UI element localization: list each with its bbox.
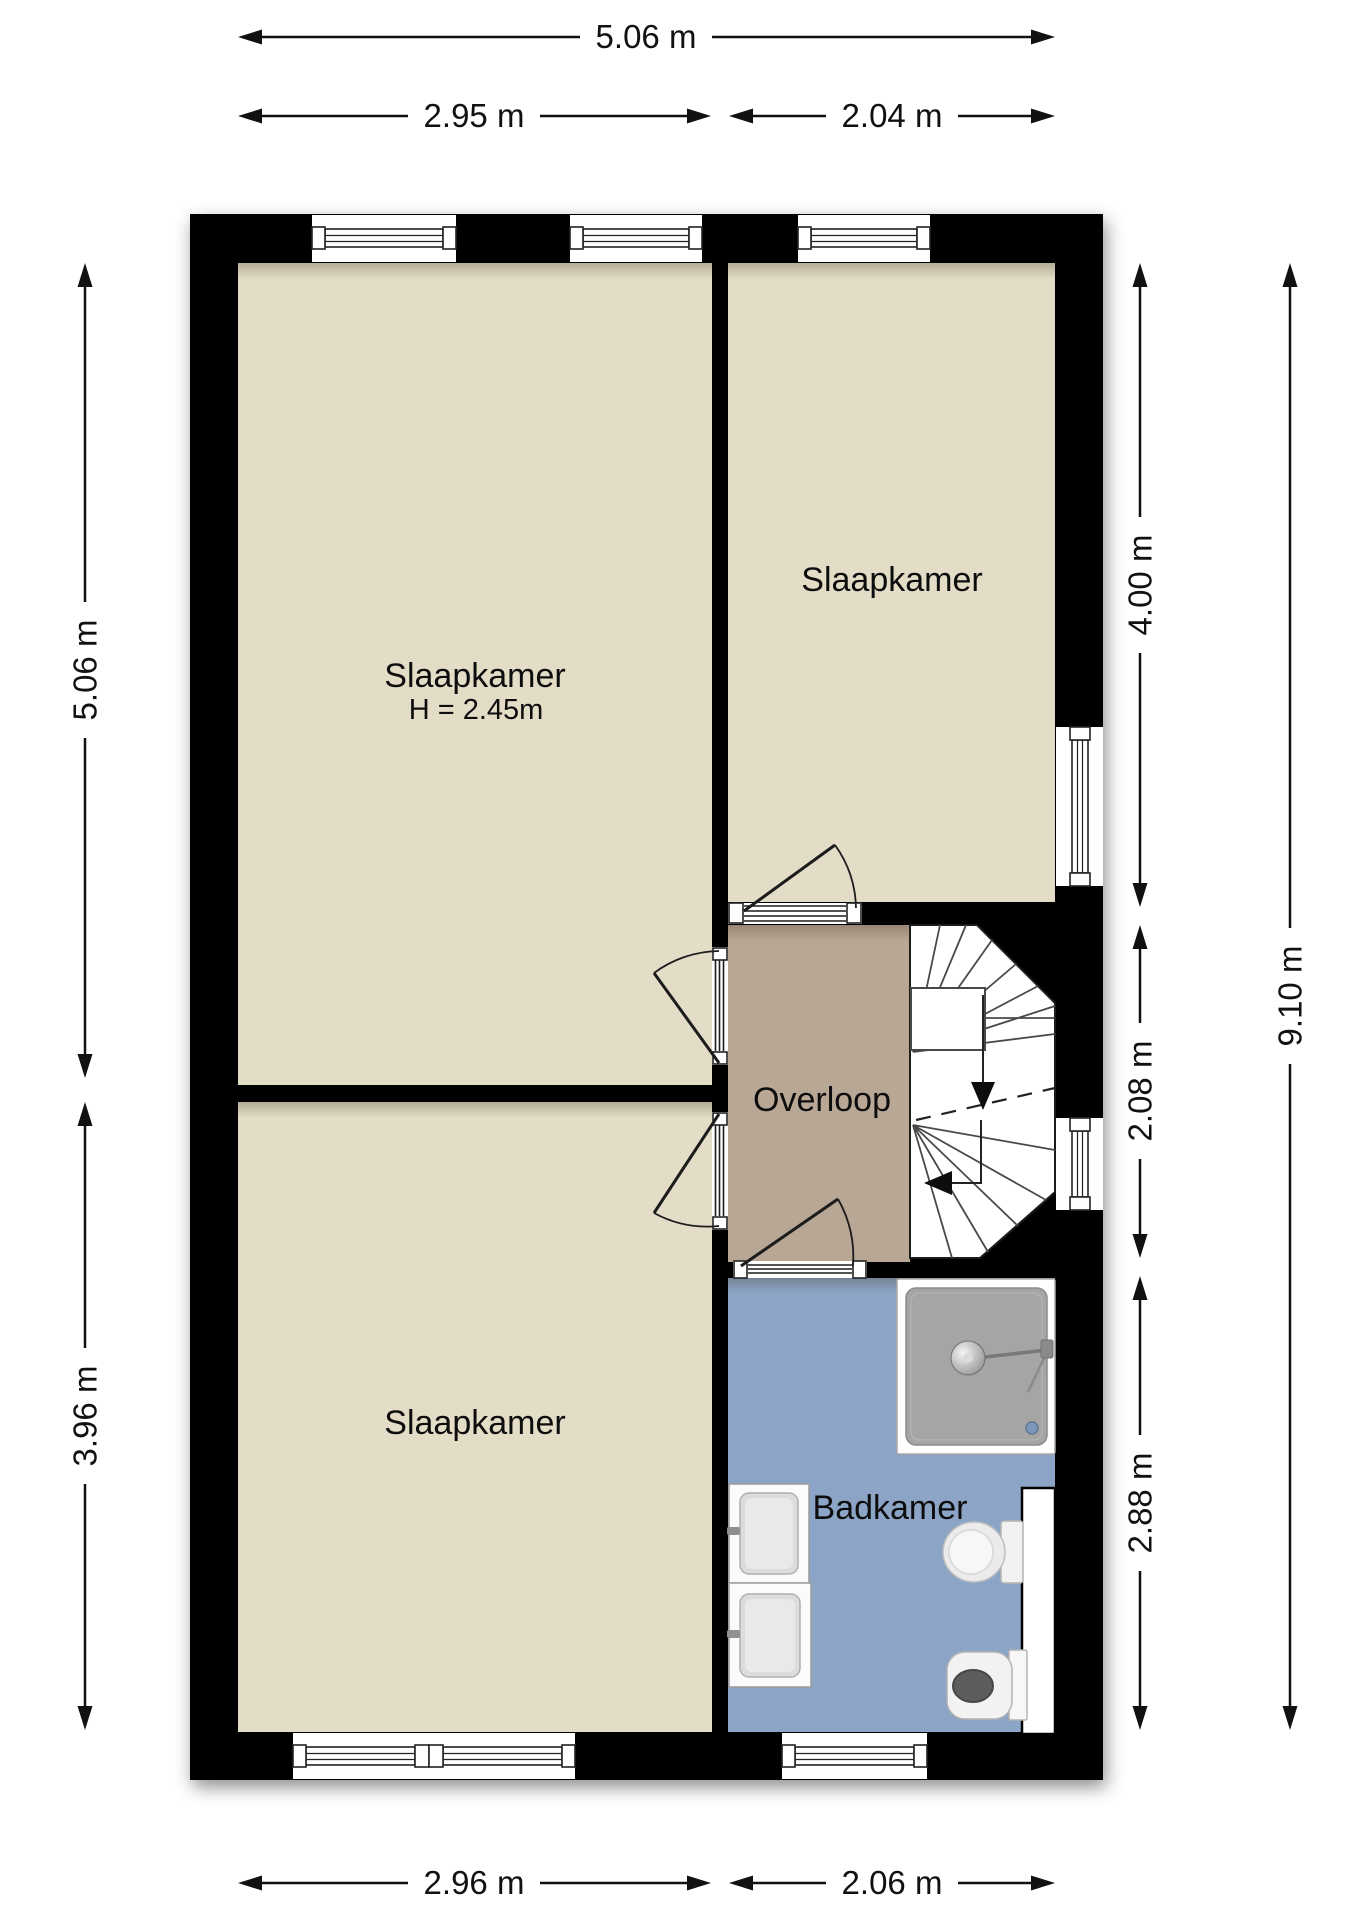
toilet-1 bbox=[943, 1521, 1023, 1583]
room-label-bedroom-top-left: Slaapkamer bbox=[384, 657, 565, 695]
window-bottom-bathroom bbox=[782, 1733, 927, 1779]
room-label-bathroom: Badkamer bbox=[813, 1489, 968, 1527]
svg-text:5.06 m: 5.06 m bbox=[596, 18, 697, 55]
washbasin-1 bbox=[727, 1484, 809, 1583]
window-right-2 bbox=[1056, 1118, 1103, 1210]
window-top-3 bbox=[798, 215, 930, 262]
dim-right-middle: 2.08 m bbox=[1122, 925, 1159, 1258]
shower-drain bbox=[1026, 1422, 1038, 1434]
shower bbox=[897, 1279, 1055, 1454]
room-label-bedroom-bottom-left: Slaapkamer bbox=[384, 1404, 565, 1442]
svg-text:2.88 m: 2.88 m bbox=[1122, 1453, 1159, 1554]
dim-bottom-right: 2.06 m bbox=[729, 1864, 1055, 1901]
dim-bottom-left: 2.96 m bbox=[238, 1864, 711, 1901]
svg-text:2.08 m: 2.08 m bbox=[1122, 1041, 1159, 1142]
dim-top-right: 2.04 m bbox=[729, 97, 1055, 134]
window-right-1 bbox=[1056, 727, 1103, 886]
dim-left-upper: 5.06 m bbox=[67, 263, 104, 1078]
svg-text:2.96 m: 2.96 m bbox=[424, 1864, 525, 1901]
dim-right-bottom: 2.88 m bbox=[1122, 1276, 1159, 1730]
dim-left-lower: 3.96 m bbox=[67, 1102, 104, 1730]
dim-top-total: 5.06 m bbox=[238, 18, 1055, 55]
svg-text:2.95 m: 2.95 m bbox=[424, 97, 525, 134]
floorplan-page: Slaapkamer H = 2.45m Slaapkamer Slaapkam… bbox=[0, 0, 1358, 1920]
room-label-landing: Overloop bbox=[753, 1081, 891, 1119]
room-height-note: H = 2.45m bbox=[409, 694, 544, 726]
floorplan-canvas: Slaapkamer H = 2.45m Slaapkamer Slaapkam… bbox=[0, 0, 1358, 1920]
svg-text:9.10 m: 9.10 m bbox=[1272, 946, 1309, 1047]
window-top-2 bbox=[570, 215, 702, 262]
faucet-icon bbox=[727, 1527, 740, 1535]
svg-text:3.96 m: 3.96 m bbox=[67, 1366, 104, 1467]
svg-text:4.00 m: 4.00 m bbox=[1122, 535, 1159, 636]
floor-plan: Slaapkamer H = 2.45m Slaapkamer Slaapkam… bbox=[190, 214, 1103, 1780]
room-label-bedroom-top-right: Slaapkamer bbox=[801, 561, 982, 599]
washbasin-2 bbox=[727, 1583, 811, 1687]
stairs-newel bbox=[911, 988, 985, 1050]
svg-text:2.06 m: 2.06 m bbox=[842, 1864, 943, 1901]
dim-top-left: 2.95 m bbox=[238, 97, 711, 134]
dim-right-total: 9.10 m bbox=[1272, 263, 1309, 1730]
svg-text:5.06 m: 5.06 m bbox=[67, 620, 104, 721]
dim-right-top: 4.00 m bbox=[1122, 263, 1159, 907]
toilet-2 bbox=[947, 1650, 1027, 1720]
svg-text:2.04 m: 2.04 m bbox=[842, 97, 943, 134]
window-top-1 bbox=[312, 215, 456, 262]
toilet-bowl bbox=[953, 1670, 993, 1702]
faucet-icon bbox=[727, 1630, 740, 1638]
window-bottom-double bbox=[293, 1733, 575, 1779]
shower-mount bbox=[1041, 1340, 1053, 1358]
